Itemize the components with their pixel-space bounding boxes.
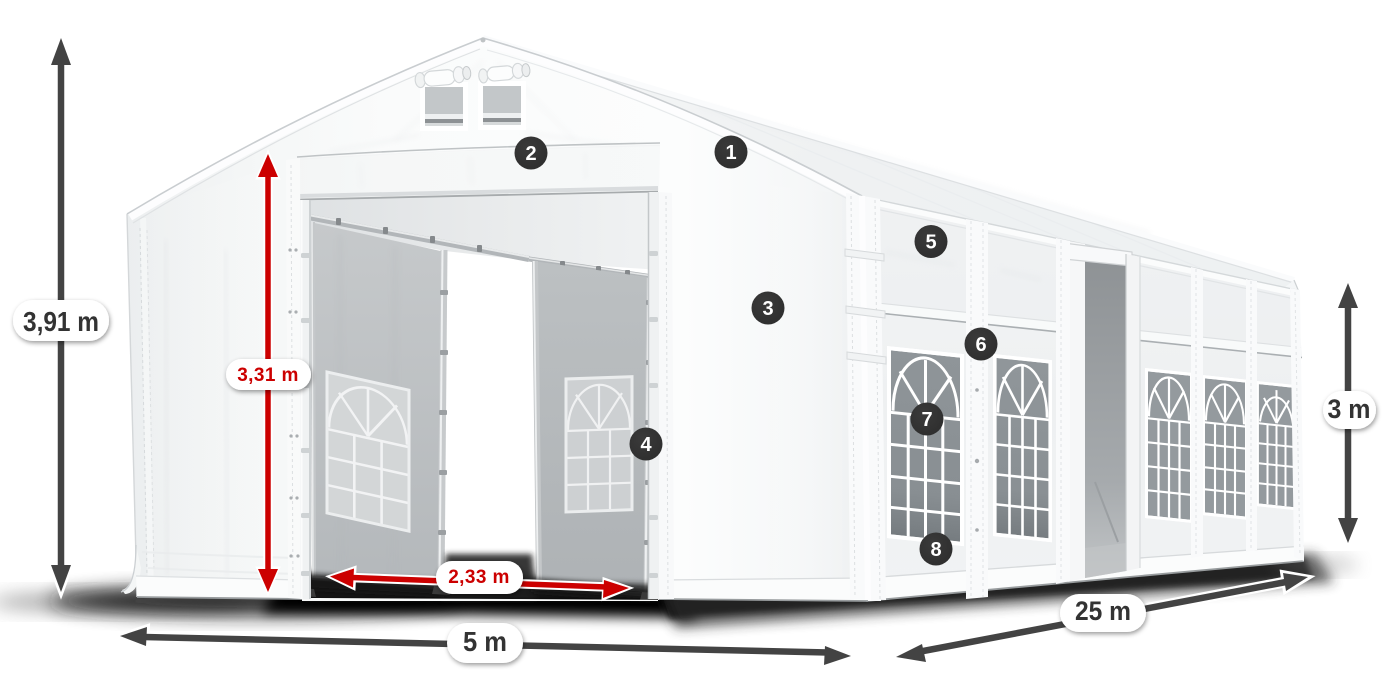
- svg-text:3,91 m: 3,91 m: [23, 306, 99, 337]
- svg-text:3 m: 3 m: [1328, 394, 1371, 424]
- svg-text:3,31 m: 3,31 m: [237, 365, 299, 386]
- svg-text:3: 3: [762, 298, 773, 320]
- svg-text:1: 1: [725, 142, 736, 164]
- svg-text:6: 6: [975, 334, 986, 356]
- svg-text:5: 5: [925, 232, 936, 254]
- svg-text:2: 2: [525, 143, 536, 165]
- svg-text:8: 8: [930, 539, 941, 561]
- svg-text:5 m: 5 m: [463, 626, 507, 657]
- svg-text:2,33 m: 2,33 m: [448, 567, 510, 588]
- svg-text:25 m: 25 m: [1075, 596, 1131, 626]
- svg-text:7: 7: [921, 409, 932, 431]
- svg-text:4: 4: [640, 434, 652, 456]
